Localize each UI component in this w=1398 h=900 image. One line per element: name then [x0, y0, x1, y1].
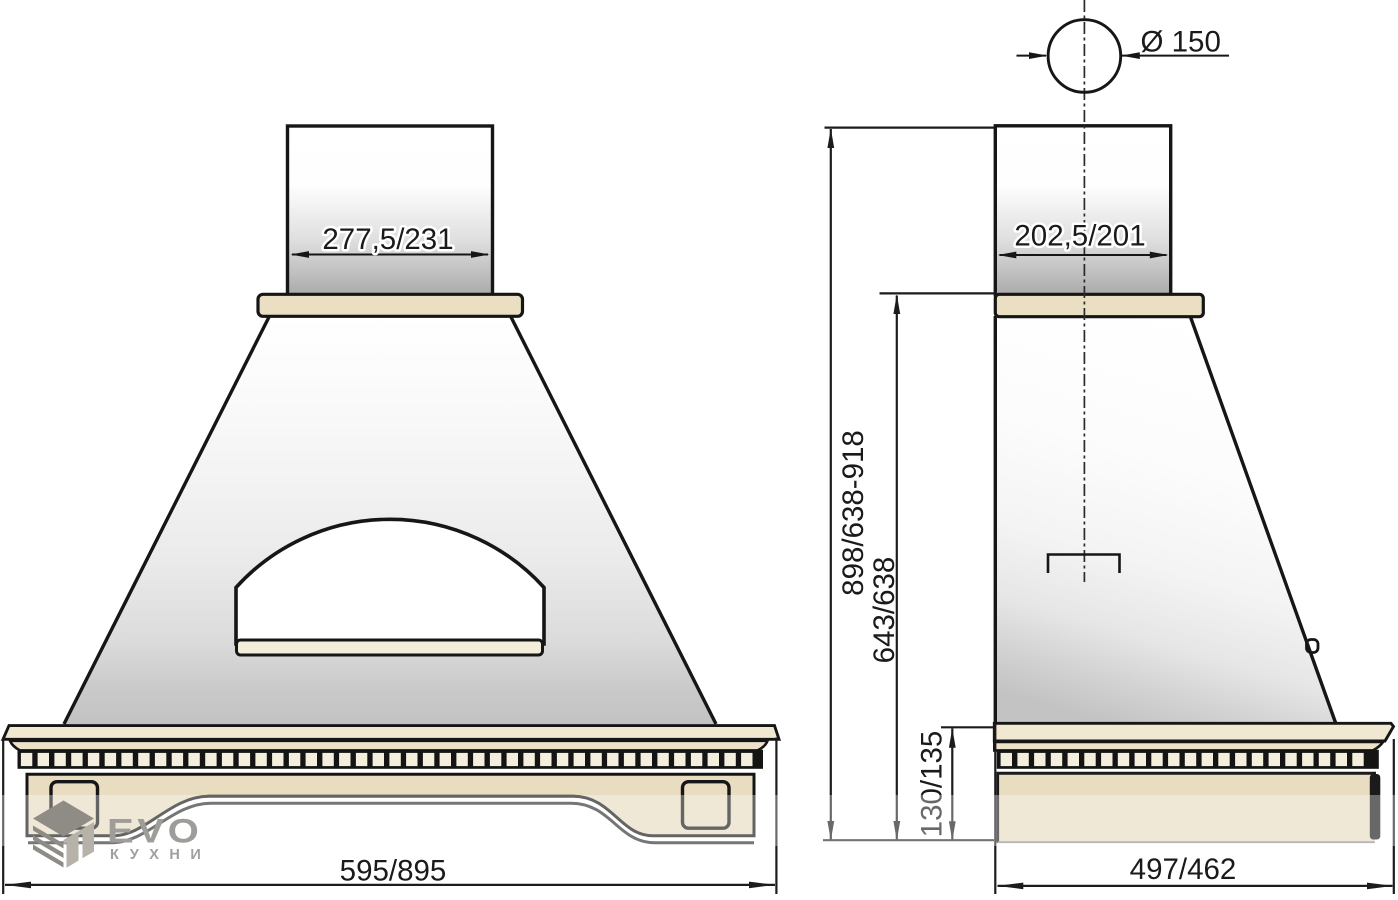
- svg-text:277,5/231: 277,5/231: [322, 223, 453, 256]
- svg-text:EVO: EVO: [107, 811, 202, 849]
- svg-text:595/895: 595/895: [340, 855, 447, 888]
- svg-text:497/462: 497/462: [1130, 853, 1237, 886]
- svg-text:КУХНИ: КУХНИ: [110, 847, 211, 863]
- svg-text:898/638-918: 898/638-918: [837, 430, 870, 596]
- svg-text:202,5/201: 202,5/201: [1014, 220, 1145, 253]
- svg-text:643/638: 643/638: [868, 557, 901, 664]
- svg-text:Ø 150: Ø 150: [1141, 26, 1221, 59]
